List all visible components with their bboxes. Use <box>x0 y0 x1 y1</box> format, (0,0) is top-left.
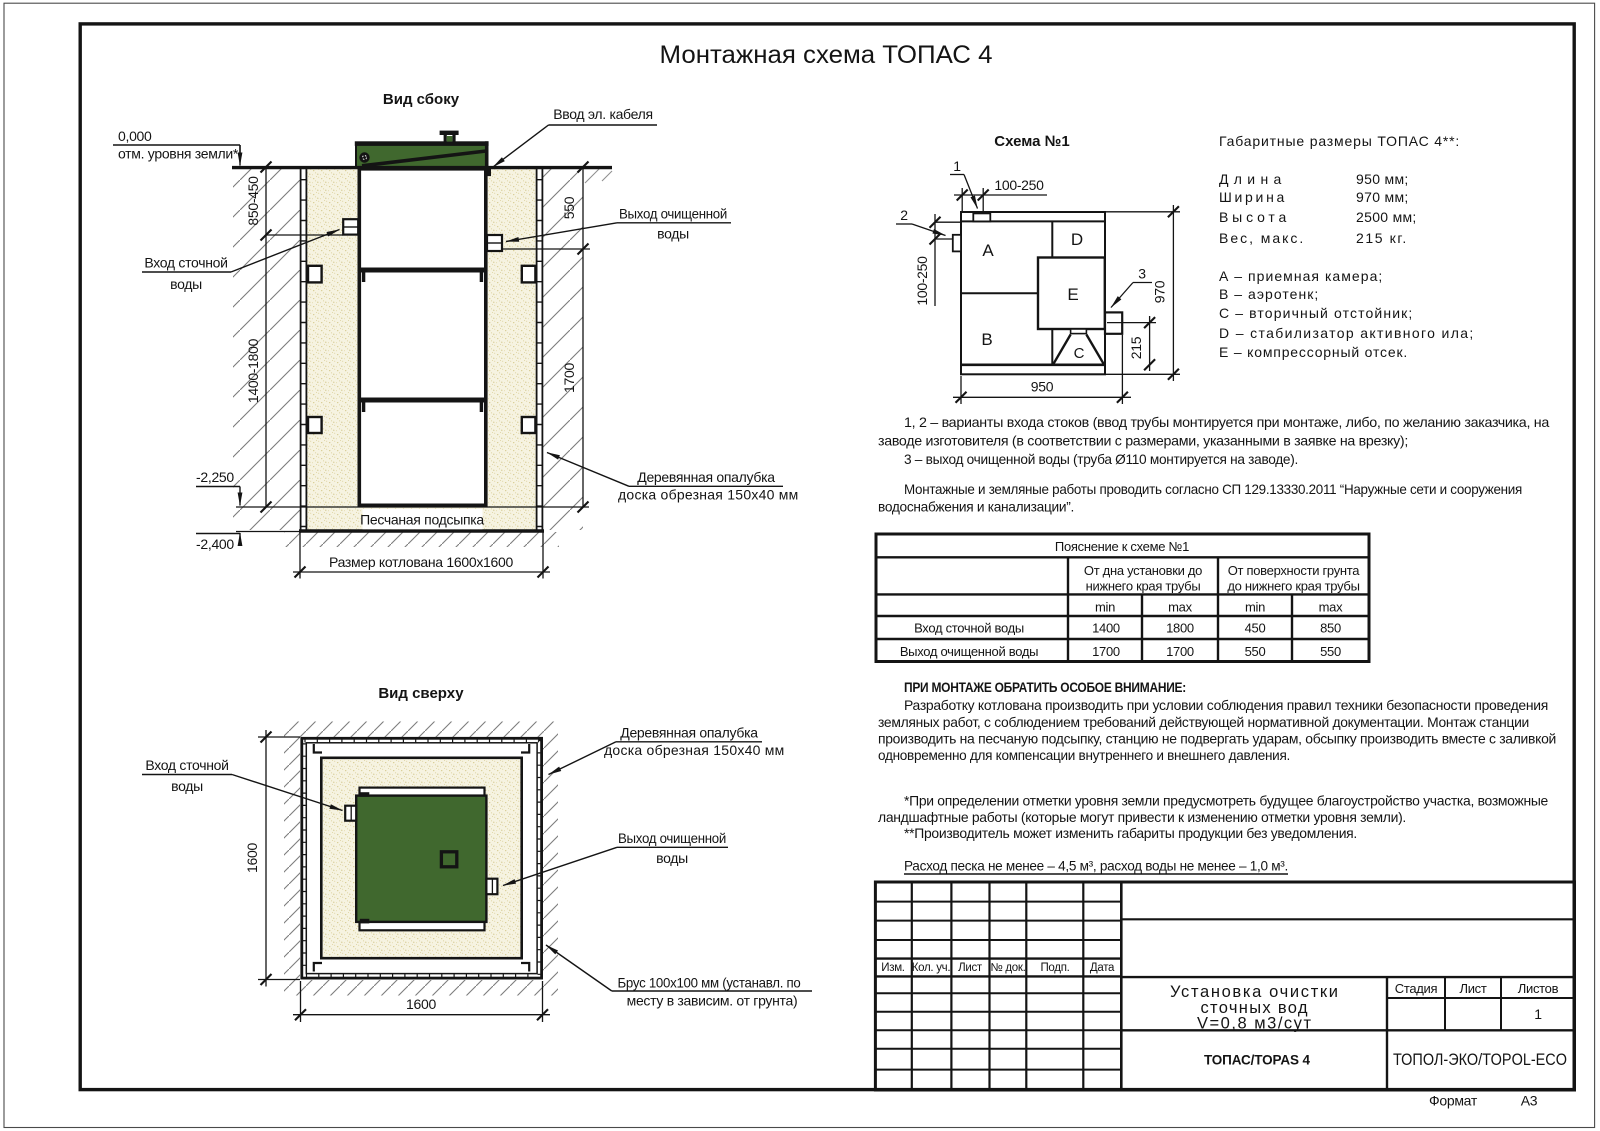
svg-text:1400-1800: 1400-1800 <box>245 338 261 403</box>
svg-text:Габаритные размеры ТОПАС 4**:: Габаритные размеры ТОПАС 4**: <box>1219 133 1459 149</box>
svg-text:450: 450 <box>1245 621 1266 636</box>
svg-text:воды: воды <box>657 226 689 242</box>
svg-text:Кол. уч.: Кол. уч. <box>912 962 951 974</box>
svg-text:заводе изготовителя (в соответ: заводе изготовителя (в соответствии с ра… <box>878 433 1408 449</box>
svg-text:Подп.: Подп. <box>1040 962 1069 974</box>
svg-text:Пояснение к схеме №1: Пояснение к схеме №1 <box>1055 539 1189 554</box>
svg-text:E: E <box>1067 285 1078 304</box>
svg-text:100-250: 100-250 <box>914 256 930 306</box>
svg-text:max: max <box>1168 600 1192 615</box>
svg-text:2: 2 <box>900 207 908 223</box>
svg-text:нижнего края трубы: нижнего края трубы <box>1086 579 1201 594</box>
svg-text:ПРИ МОНТАЖЕ ОБРАТИТЬ ОСОБОЕ ВН: ПРИ МОНТАЖЕ ОБРАТИТЬ ОСОБОЕ ВНИМАНИЕ: <box>904 679 1186 695</box>
svg-text:Лист: Лист <box>958 962 983 974</box>
svg-text:А3: А3 <box>1521 1093 1538 1109</box>
svg-text:min: min <box>1095 600 1115 615</box>
svg-text:Песчаная подсыпка: Песчаная подсыпка <box>360 512 484 528</box>
svg-text:max: max <box>1319 600 1343 615</box>
svg-text:3: 3 <box>1138 266 1146 282</box>
svg-text:D: D <box>1071 230 1083 249</box>
svg-text:1600: 1600 <box>406 996 436 1012</box>
svg-text:Брус 100х100 мм (устанавл. по: Брус 100х100 мм (устанавл. по <box>618 975 801 991</box>
svg-text:Схема №1: Схема №1 <box>994 133 1069 150</box>
svg-text:Размер котлована 1600х1600: Размер котлована 1600х1600 <box>329 554 513 570</box>
svg-text:Выход очищенной воды: Выход очищенной воды <box>900 644 1038 659</box>
svg-text:970: 970 <box>1152 280 1168 303</box>
svg-text:доска обрезная 150х40 мм: доска обрезная 150х40 мм <box>604 742 784 758</box>
svg-text:1600: 1600 <box>244 843 260 873</box>
svg-text:месту в зависим. от грунта): месту в зависим. от грунта) <box>627 993 798 1009</box>
svg-text:Деревянная опалубка: Деревянная опалубка <box>620 725 758 741</box>
svg-text:водоснабжения и канализации”.: водоснабжения и канализации”. <box>878 499 1074 515</box>
svg-text:Вес, макс.: Вес, макс. <box>1219 230 1303 246</box>
svg-text:0,000: 0,000 <box>118 128 152 144</box>
svg-text:Монтажные и земляные работы пр: Монтажные и земляные работы проводить со… <box>904 481 1522 497</box>
svg-text:до нижнего края трубы: до нижнего края трубы <box>1227 579 1359 594</box>
svg-text:1700: 1700 <box>561 363 577 393</box>
svg-text:Монтажная схема ТОПАС 4: Монтажная схема ТОПАС 4 <box>660 41 993 69</box>
svg-text:950 мм;: 950 мм; <box>1356 171 1408 187</box>
svg-text:1400: 1400 <box>1092 621 1120 636</box>
svg-text:Вид сбоку: Вид сбоку <box>383 91 460 108</box>
svg-text:одновременно для компенсации в: одновременно для компенсации внутреннего… <box>878 747 1290 763</box>
svg-text:От поверхности грунта: От поверхности грунта <box>1228 563 1361 578</box>
svg-text:отм. уровня земли*: отм. уровня земли* <box>118 146 239 162</box>
svg-text:Вход сточной: Вход сточной <box>144 255 227 271</box>
svg-text:доска обрезная 150х40 мм: доска обрезная 150х40 мм <box>618 487 798 503</box>
svg-text:215: 215 <box>1128 336 1144 359</box>
svg-text:Вид сверху: Вид сверху <box>378 685 464 702</box>
svg-text:*При определении отметки уровн: *При определении отметки уровня земли пр… <box>904 793 1548 809</box>
svg-text:Лист: Лист <box>1459 981 1486 996</box>
svg-text:1, 2 – варианты входа стоков: 1, 2 – варианты входа стоков (ввод трубы… <box>904 414 1550 430</box>
svg-text:-2,250: -2,250 <box>196 469 234 485</box>
svg-text:Вход сточной воды: Вход сточной воды <box>914 621 1024 636</box>
svg-text:Выход очищенной: Выход очищенной <box>619 206 727 222</box>
svg-text:А – приемная камера;: А – приемная камера; <box>1219 268 1382 284</box>
svg-text:Е – компрессорный отсек.: Е – компрессорный отсек. <box>1219 344 1407 360</box>
svg-text:1: 1 <box>953 158 961 174</box>
svg-text:земляных работ, с соблюдением: земляных работ, с соблюдением требований… <box>878 714 1529 730</box>
svg-text:Разработку котлована производи: Разработку котлована производить при усл… <box>904 697 1548 713</box>
svg-text:ТОПАС/TOPAS 4: ТОПАС/TOPAS 4 <box>1204 1053 1310 1068</box>
svg-text:850: 850 <box>1320 621 1341 636</box>
svg-text:**Производитель может изменить: **Производитель может изменить габариты … <box>904 825 1357 841</box>
svg-text:950: 950 <box>1031 379 1054 395</box>
svg-text:970 мм;: 970 мм; <box>1356 189 1408 205</box>
svg-text:№ док.: № док. <box>990 962 1025 974</box>
svg-text:В – аэротенк;: В – аэротенк; <box>1219 286 1318 302</box>
svg-text:Изм.: Изм. <box>881 962 905 974</box>
svg-text:850-450: 850-450 <box>245 176 261 226</box>
svg-text:100-250: 100-250 <box>994 177 1044 193</box>
svg-text:550: 550 <box>1245 644 1266 659</box>
svg-text:2500 мм;: 2500 мм; <box>1356 209 1416 225</box>
svg-text:550: 550 <box>1320 644 1341 659</box>
svg-text:min: min <box>1245 600 1265 615</box>
svg-text:Стадия: Стадия <box>1395 981 1438 996</box>
svg-text:1: 1 <box>1534 1006 1542 1022</box>
svg-text:B: B <box>981 330 992 349</box>
svg-text:Расход песка не менее – 4,5 м³: Расход песка не менее – 4,5 м³, расход в… <box>904 858 1288 874</box>
svg-text:Деревянная опалубка: Деревянная опалубка <box>637 469 775 485</box>
svg-text:1700: 1700 <box>1092 644 1120 659</box>
svg-text:1800: 1800 <box>1166 621 1194 636</box>
svg-text:V=0,8 м3/сут: V=0,8 м3/сут <box>1197 1015 1311 1033</box>
svg-text:-2,400: -2,400 <box>196 536 234 552</box>
svg-text:Листов: Листов <box>1518 981 1559 996</box>
svg-text:Дата: Дата <box>1090 962 1115 974</box>
svg-text:Вход сточной: Вход сточной <box>145 757 228 773</box>
svg-text:ландшафтные работы (которые мо: ландшафтные работы (которые могут привес… <box>878 809 1406 825</box>
svg-text:От дна установки до: От дна установки до <box>1084 563 1202 578</box>
svg-text:550: 550 <box>561 196 577 219</box>
svg-text:Формат: Формат <box>1429 1093 1478 1109</box>
svg-text:воды: воды <box>170 276 202 292</box>
svg-text:A: A <box>982 241 994 260</box>
svg-text:1700: 1700 <box>1166 644 1194 659</box>
svg-text:Выход очищенной: Выход очищенной <box>618 830 726 846</box>
svg-text:воды: воды <box>171 778 203 794</box>
svg-text:воды: воды <box>656 850 688 866</box>
svg-text:3 – выход очищенной воды (труб: 3 – выход очищенной воды (труба Ø110 мон… <box>904 451 1298 467</box>
svg-text:C: C <box>1074 345 1085 362</box>
svg-text:ТОПОЛ-ЭКО/TOPOL-ECO: ТОПОЛ-ЭКО/TOPOL-ECO <box>1393 1050 1567 1069</box>
svg-text:производить на песчаную подсып: производить на песчаную подсыпку, станци… <box>878 731 1556 747</box>
svg-text:Ввод эл. кабеля: Ввод эл. кабеля <box>553 106 653 122</box>
